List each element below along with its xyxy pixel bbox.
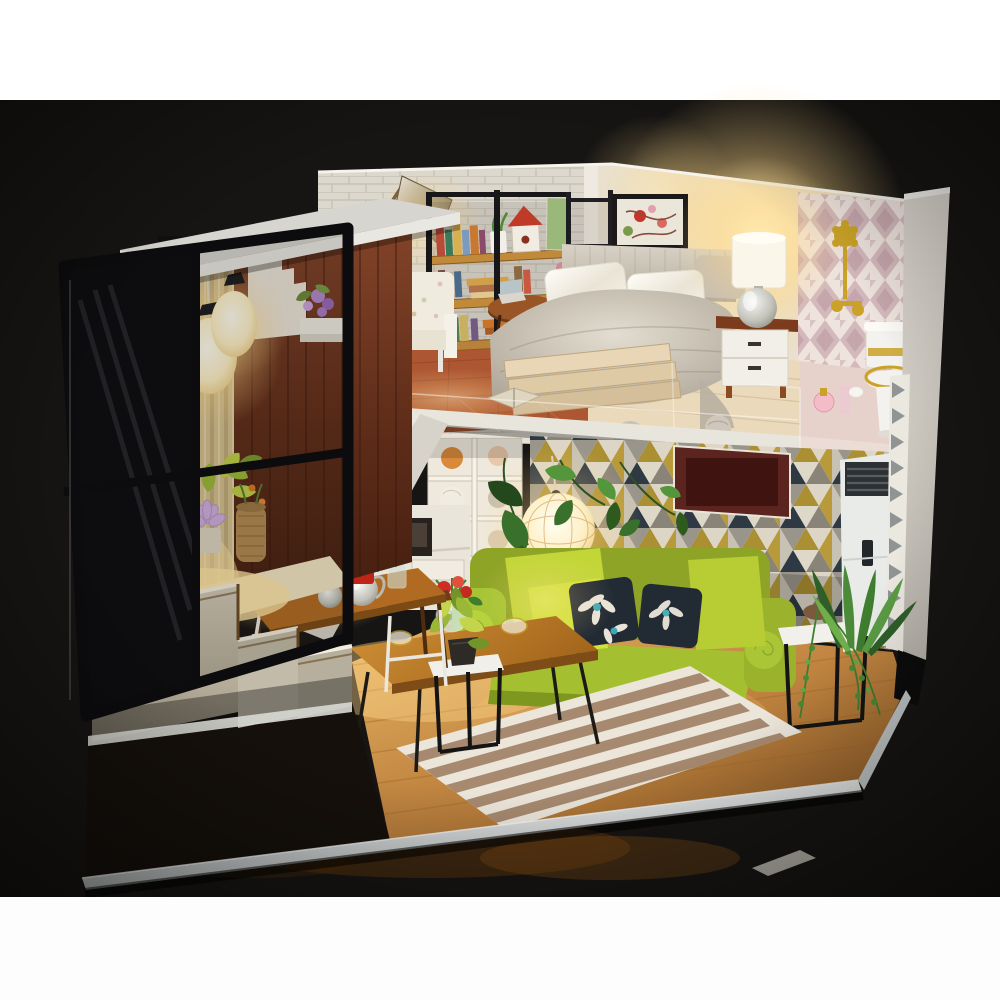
- vignette: [0, 100, 1000, 900]
- top-white-border: [0, 0, 1000, 102]
- bottom-white-border: [0, 897, 1000, 1000]
- dollhouse-photo: MILK: [0, 0, 1000, 1000]
- scene-canvas: MILK: [0, 0, 1000, 1000]
- overlays: [0, 100, 1000, 1000]
